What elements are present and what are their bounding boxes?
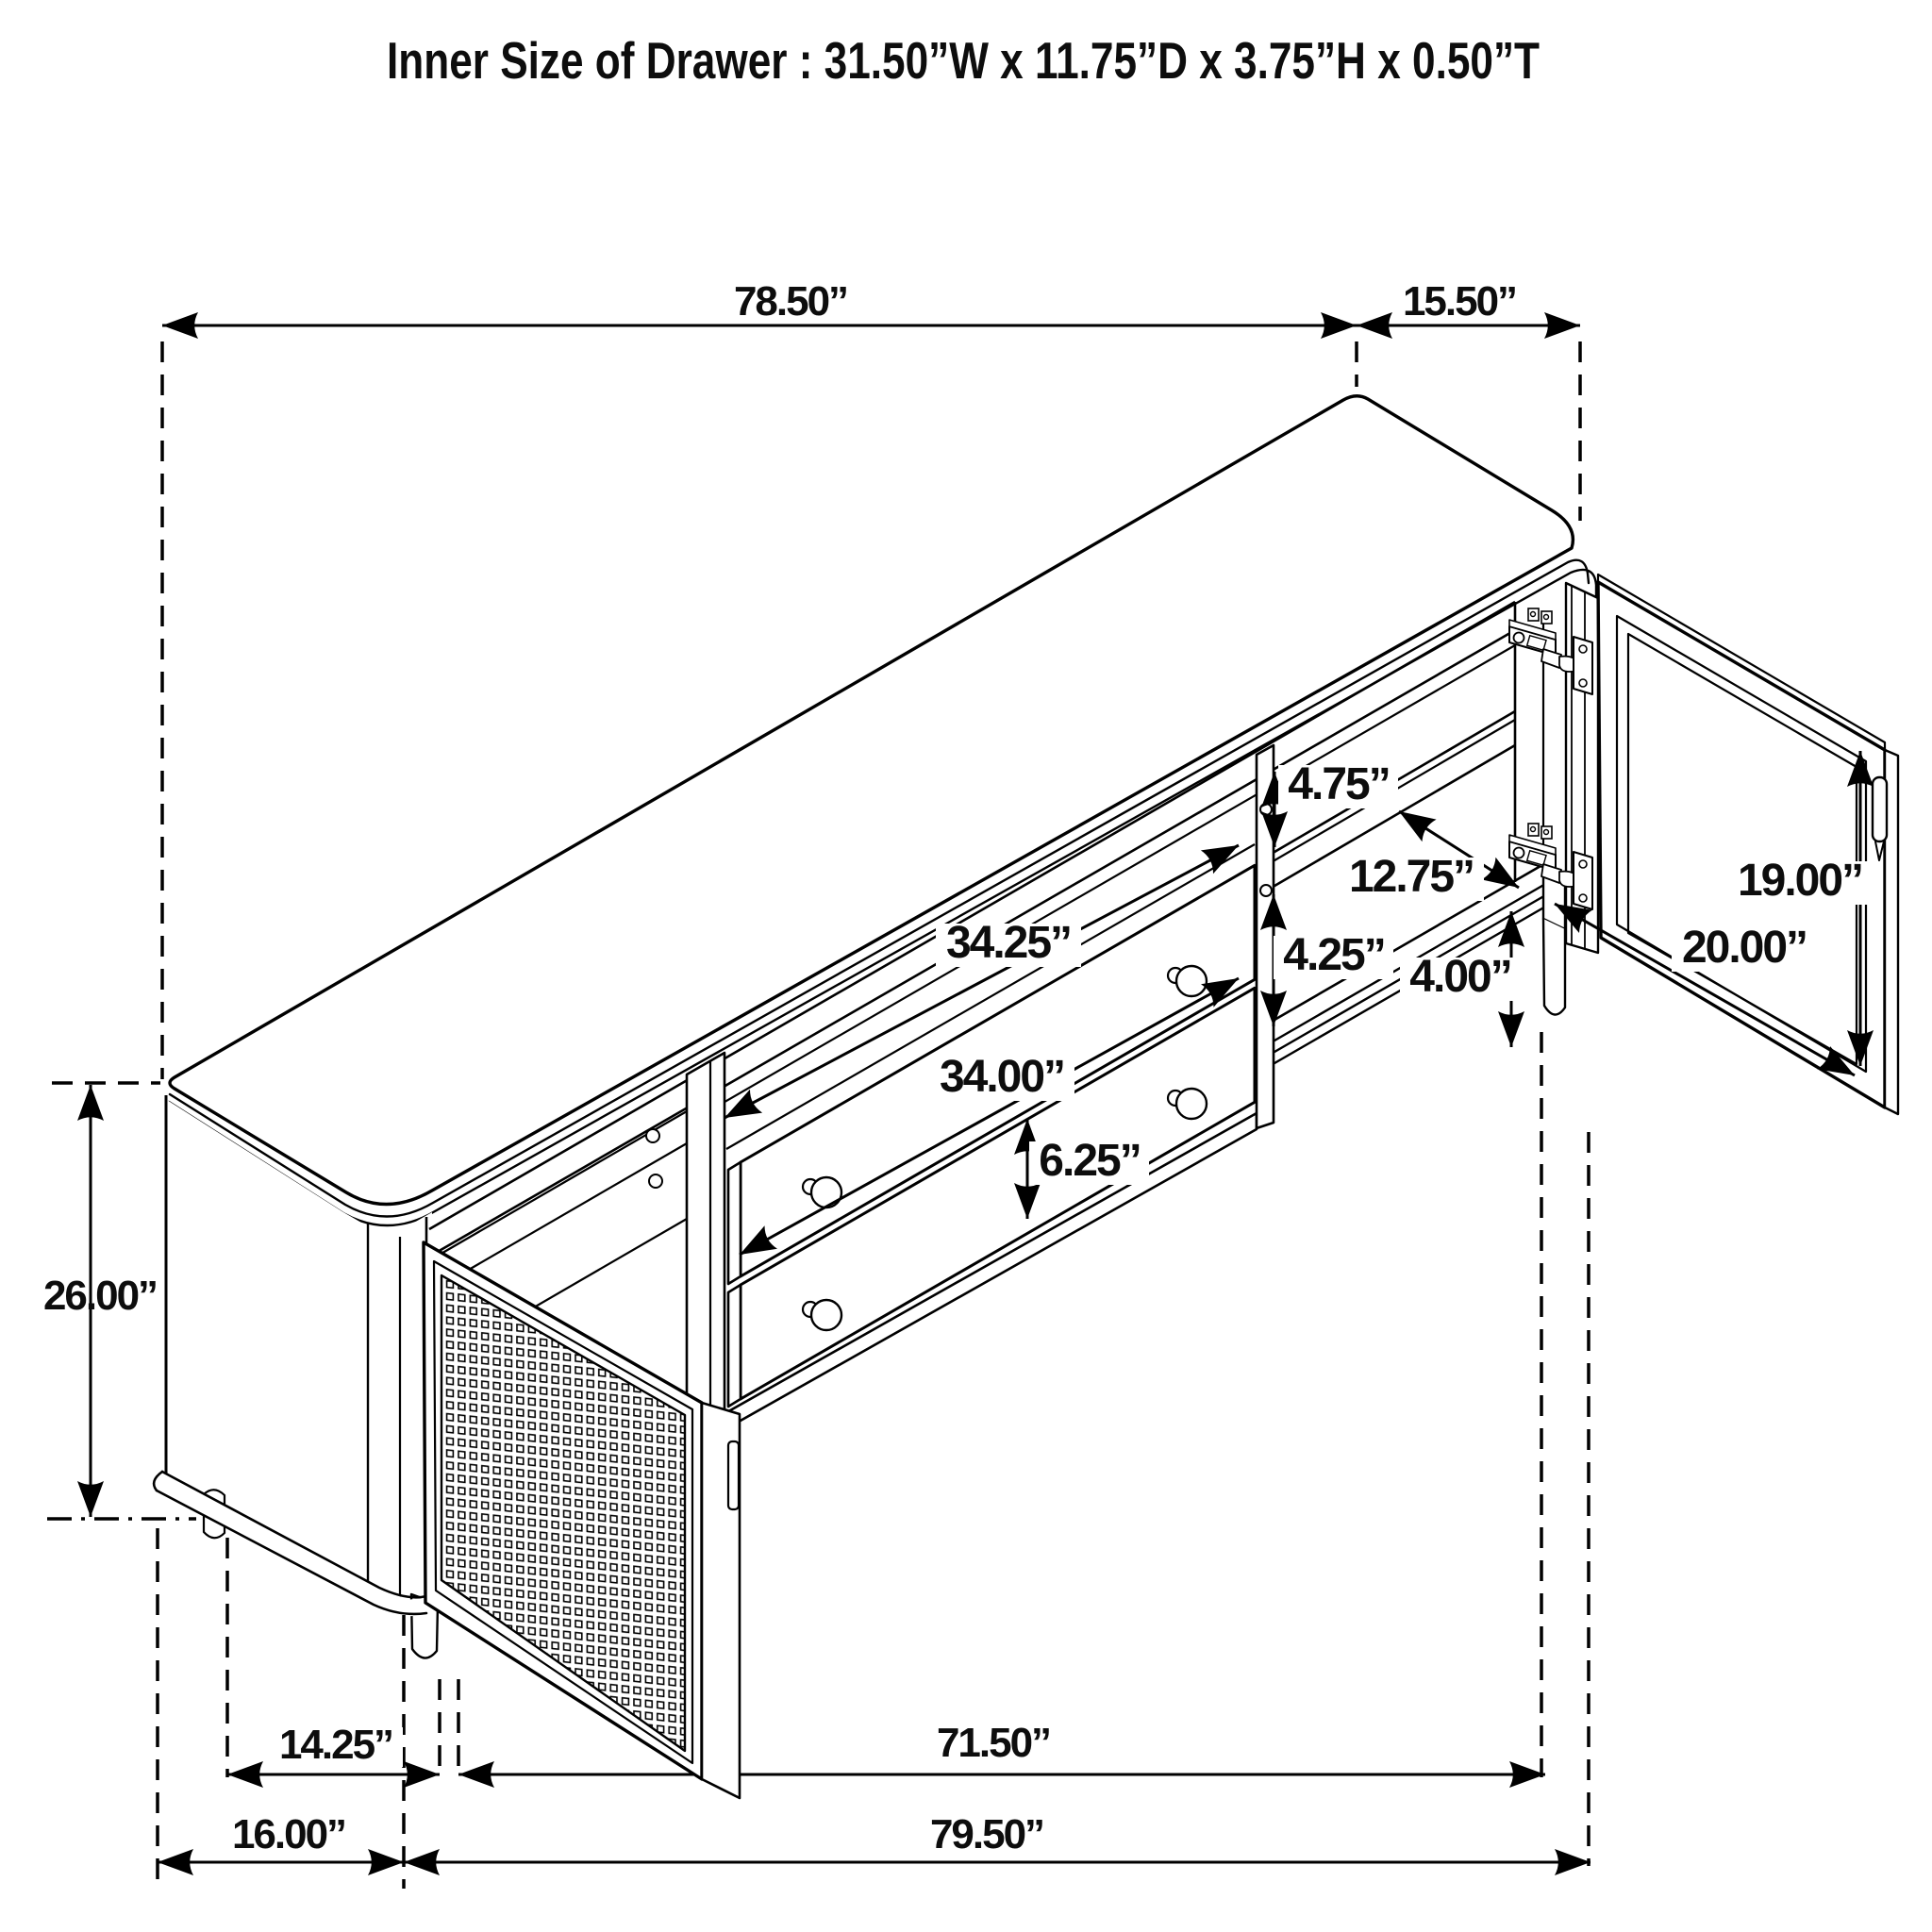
svg-text:19.00”: 19.00” [1738, 856, 1862, 906]
svg-text:14.25”: 14.25” [279, 1722, 392, 1768]
svg-text:34.25”: 34.25” [946, 918, 1071, 968]
svg-text:78.50”: 78.50” [734, 278, 847, 325]
svg-text:34.00”: 34.00” [940, 1052, 1064, 1102]
svg-text:79.50”: 79.50” [930, 1811, 1043, 1857]
svg-text:20.00”: 20.00” [1682, 923, 1807, 973]
svg-text:4.25”: 4.25” [1283, 930, 1384, 980]
svg-text:26.00”: 26.00” [43, 1273, 157, 1319]
svg-text:4.75”: 4.75” [1288, 759, 1389, 809]
svg-text:12.75”: 12.75” [1349, 852, 1474, 902]
svg-text:4.00”: 4.00” [1409, 952, 1510, 1002]
svg-text:71.50”: 71.50” [937, 1720, 1050, 1766]
svg-text:15.50”: 15.50” [1403, 278, 1516, 325]
svg-text:Inner Size of Drawer : 31.50”W: Inner Size of Drawer : 31.50”W x 11.75”D… [387, 31, 1540, 90]
svg-text:16.00”: 16.00” [232, 1811, 345, 1857]
svg-text:6.25”: 6.25” [1039, 1136, 1140, 1186]
